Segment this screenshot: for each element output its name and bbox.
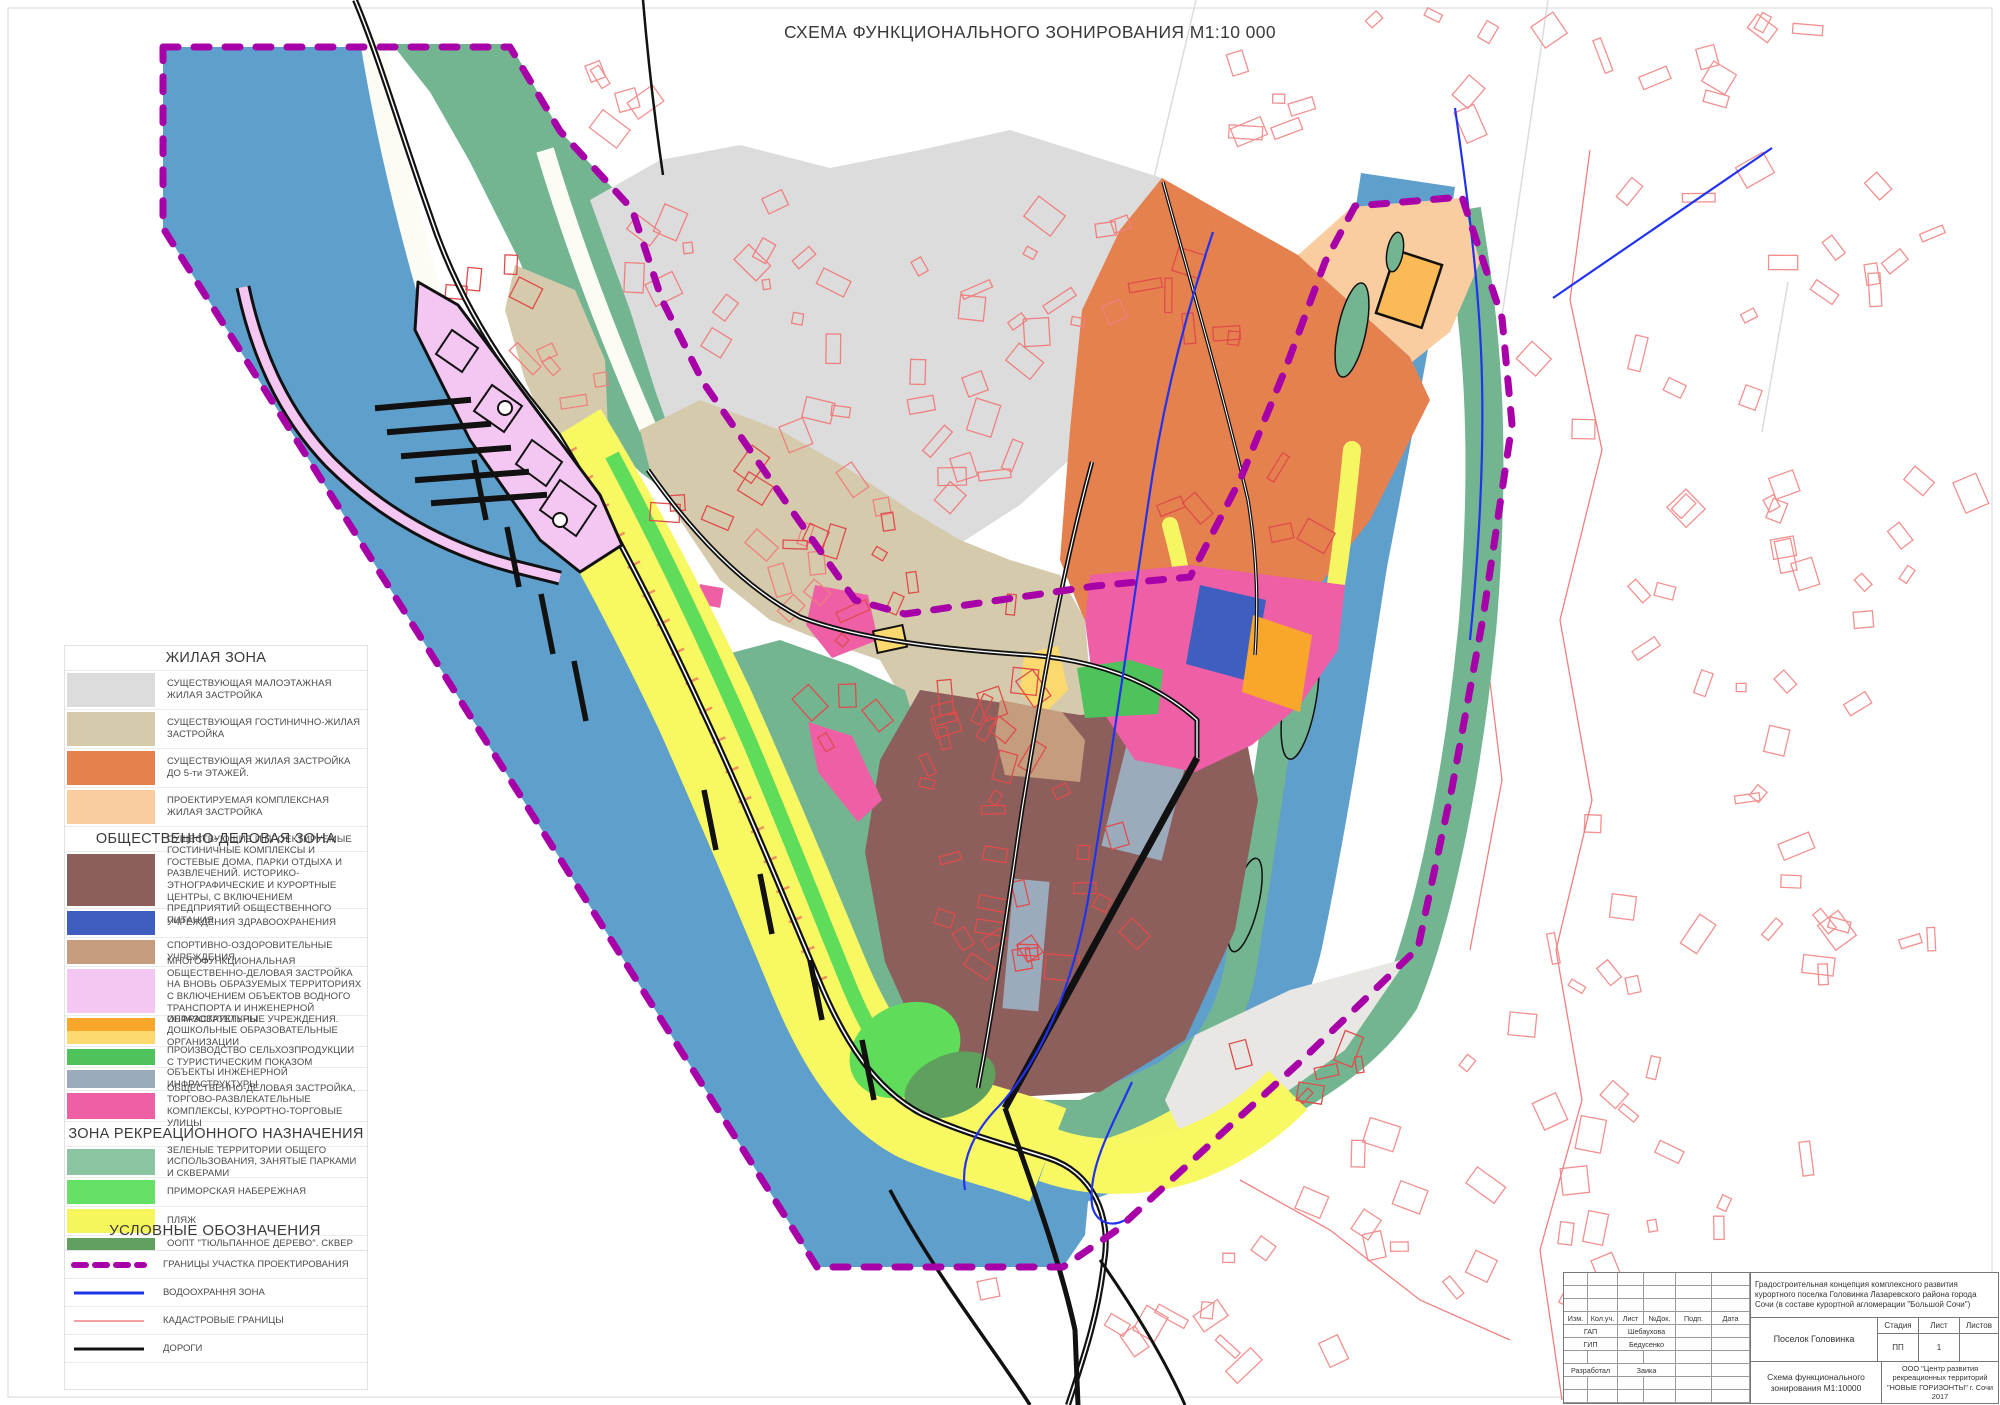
legend-item-label: ЗЕЛЕНЫЕ ТЕРРИТОРИИ ОБЩЕГО ИСПОЛЬЗОВАНИЯ,… (157, 1147, 367, 1177)
stamp-col-header: Лист (1618, 1312, 1644, 1325)
legend-swatch (67, 911, 155, 935)
stamp-role: ГИП (1564, 1338, 1618, 1351)
title-block-revisions: Изм. Кол.уч. Лист №Док. Подп. Дата ГАП Ш… (1564, 1273, 1751, 1403)
legend-panel: ЖИЛАЯ ЗОНА СУЩЕСТВУЮЩАЯ МАЛОЭТАЖНАЯ ЖИЛА… (64, 645, 368, 1265)
sheet: СХЕМА ФУНКЦИОНАЛЬНОГО ЗОНИРОВАНИЯ М1:10 … (0, 0, 2000, 1405)
legend-swatch (67, 1149, 155, 1175)
legend-swatch (67, 1070, 155, 1088)
legend-item-label: МНОГОФУНКЦИОНАЛЬНАЯ ОБЩЕСТВЕННО-ДЕЛОВАЯ … (157, 967, 367, 1015)
water-protection-line-symbol (65, 1286, 153, 1300)
legend-swatch-top (67, 1018, 155, 1031)
stamp-col-header: Кол.уч. (1588, 1312, 1618, 1325)
legend-symbol-label: ВОДООХРАННЯ ЗОНА (153, 1287, 367, 1298)
legend-swatch-two-tone (67, 1018, 155, 1044)
legend-symbols-table: ГРАНИЦЫ УЧАСТКА ПРОЕКТИРОВАНИЯ ВОДООХРАН… (64, 1250, 368, 1390)
legend-item-label: ПРОЕКТИРУЕМАЯ КОМПЛЕКСНАЯ ЖИЛАЯ ЗАСТРОЙК… (157, 788, 367, 826)
legend-swatch (67, 790, 155, 824)
legend-symbol-label: КАДАСТРОВЫЕ ГРАНИЦЫ (153, 1315, 367, 1326)
legend-symbol-label: ДОРОГИ (153, 1343, 367, 1354)
legend-item: ПРОЕКТИРУЕМАЯ КОМПЛЕКСНАЯ ЖИЛАЯ ЗАСТРОЙК… (65, 788, 367, 827)
legend-item-label: СУЩЕСТВУЮЩАЯ ГОСТИНИЧНО-ЖИЛАЯ ЗАСТРОЙКА (157, 710, 367, 748)
legend-swatch (67, 854, 155, 906)
legend-item-label: СУЩЕСТВУЮЩАЯ МАЛОЭТАЖНАЯ ЖИЛАЯ ЗАСТРОЙКА (157, 671, 367, 709)
sheets-value (1960, 1334, 1998, 1361)
stage-value: ПП (1878, 1334, 1919, 1361)
title-block: Изм. Кол.уч. Лист №Док. Подп. Дата ГАП Ш… (1563, 1272, 1999, 1404)
legend-swatch (67, 1093, 155, 1119)
stamp-name: Шебаухова (1618, 1325, 1676, 1338)
stamp-col-header: №Док. (1644, 1312, 1676, 1325)
legend-header-symbols: УСЛОВНЫЕ ОБОЗНАЧЕНИЯ (64, 1222, 366, 1239)
legend-symbol-row: ВОДООХРАННЯ ЗОНА (65, 1279, 367, 1307)
legend-header-recreation: ЗОНА РЕКРЕАЦИОННОГО НАЗНАЧЕНИЯ (65, 1122, 367, 1147)
organization: ООО "Центр развития рекреационных террит… (1882, 1362, 1998, 1403)
legend-swatch (67, 1180, 155, 1204)
legend-item-label: ОБРАЗОВАТЕЛЬНЫЕ УЧРЕЖДЕНИЯ. ДОШКОЛЬНЫЕ О… (157, 1016, 367, 1046)
project-object: Поселок Головинка (1751, 1318, 1878, 1361)
legend-symbol-row: КАДАСТРОВЫЕ ГРАНИЦЫ (65, 1307, 367, 1335)
legend-swatch (67, 969, 155, 1013)
water-protection-line-ne (1553, 148, 1772, 298)
legend-item-label: ОБЩЕСТВЕННО-ДЕЛОВАЯ ЗАСТРОЙКА, ТОРГОВО-Р… (157, 1091, 367, 1121)
stamp-role: ГАП (1564, 1325, 1618, 1338)
legend-swatch (67, 751, 155, 785)
boundary-line-symbol (65, 1258, 153, 1272)
legend-symbol-row: ДОРОГИ (65, 1335, 367, 1363)
legend-item: ПРИМОРСКАЯ НАБЕРЕЖНАЯ (65, 1178, 367, 1207)
sheets-label: Листов (1960, 1318, 1998, 1333)
legend-item-label: УЧРЕЖДЕНИЯ ЗДРАВООХРАНЕНИЯ (157, 909, 367, 937)
legend-item: СУЩЕСТВУЮЩАЯ ЖИЛАЯ ЗАСТРОЙКА ДО 5-ти ЭТА… (65, 749, 367, 788)
south-road-east (1100, 1260, 1185, 1405)
legend-item: МНОГОФУНКЦИОНАЛЬНАЯ ОБЩЕСТВЕННО-ДЕЛОВАЯ … (65, 967, 367, 1016)
legend-item: СУЩЕСТВУЮЩИЕ И ПРОЕКТИРУЕМЫЕ ГОСТИНИЧНЫЕ… (65, 852, 367, 909)
legend-symbol-row: ГРАНИЦЫ УЧАСТКА ПРОЕКТИРОВАНИЯ (65, 1251, 367, 1279)
legend-symbols-pad (65, 1363, 367, 1389)
cadastral-line-symbol (65, 1314, 153, 1328)
road-line-symbol (65, 1342, 153, 1356)
legend-item: ОБЩЕСТВЕННО-ДЕЛОВАЯ ЗАСТРОЙКА, ТОРГОВО-Р… (65, 1091, 367, 1122)
legend-swatch (67, 712, 155, 746)
legend-item: ПРОИЗВОДСТВО СЕЛЬХОЗПРОДУКЦИИ С ТУРИСТИЧ… (65, 1047, 367, 1068)
legend-swatch (67, 1049, 155, 1065)
legend-item: ЗЕЛЕНЫЕ ТЕРРИТОРИИ ОБЩЕГО ИСПОЛЬЗОВАНИЯ,… (65, 1147, 367, 1178)
stamp-col-header: Подп. (1676, 1312, 1712, 1325)
legend-swatch-bottom (67, 1031, 155, 1044)
legend-swatch (67, 673, 155, 707)
map-title: СХЕМА ФУНКЦИОНАЛЬНОГО ЗОНИРОВАНИЯ М1:10 … (530, 22, 1530, 43)
legend-item-label: СУЩЕСТВУЮЩАЯ ЖИЛАЯ ЗАСТРОЙКА ДО 5-ти ЭТА… (157, 749, 367, 787)
legend-item: УЧРЕЖДЕНИЯ ЗДРАВООХРАНЕНИЯ (65, 909, 367, 938)
stamp-name: Заика (1618, 1364, 1676, 1377)
legend-swatch (67, 940, 155, 964)
stamp-name: Бедусенко (1618, 1338, 1676, 1351)
legend-symbol-label: ГРАНИЦЫ УЧАСТКА ПРОЕКТИРОВАНИЯ (153, 1259, 367, 1270)
stage-label: Стадия (1878, 1318, 1919, 1333)
sheet-label: Лист (1919, 1318, 1960, 1333)
legend-item-label: ПРОИЗВОДСТВО СЕЛЬХОЗПРОДУКЦИИ С ТУРИСТИЧ… (157, 1047, 367, 1067)
legend-item: ОБРАЗОВАТЕЛЬНЫЕ УЧРЕЖДЕНИЯ. ДОШКОЛЬНЫЕ О… (65, 1016, 367, 1047)
drawing-name: Схема функционального зонирования М1:100… (1751, 1362, 1882, 1403)
stamp-role: Разработал (1564, 1364, 1618, 1377)
project-description: Градостроительная концепция комплексного… (1751, 1273, 1998, 1318)
legend-item: СУЩЕСТВУЮЩАЯ ГОСТИНИЧНО-ЖИЛАЯ ЗАСТРОЙКА (65, 710, 367, 749)
stamp-col-header: Дата (1712, 1312, 1750, 1325)
sheet-value: 1 (1919, 1334, 1960, 1361)
stamp-col-header: Изм. (1564, 1312, 1588, 1325)
legend-item-label: СУЩЕСТВУЮЩИЕ И ПРОЕКТИРУЕМЫЕ ГОСТИНИЧНЫЕ… (157, 852, 367, 908)
legend-item: СУЩЕСТВУЮЩАЯ МАЛОЭТАЖНАЯ ЖИЛАЯ ЗАСТРОЙКА (65, 671, 367, 710)
legend-header-residential: ЖИЛАЯ ЗОНА (65, 646, 367, 671)
legend-item-label: ПРИМОРСКАЯ НАБЕРЕЖНАЯ (157, 1178, 367, 1206)
